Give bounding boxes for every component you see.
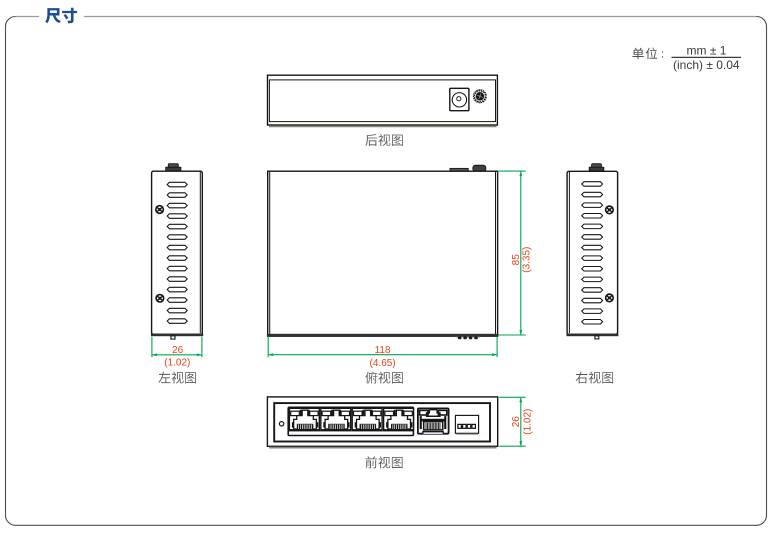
svg-text:(inch) ± 0.04: (inch) ± 0.04 [673,58,740,72]
svg-text:(3.35): (3.35) [521,247,532,273]
svg-text:118: 118 [375,345,391,356]
svg-text::: : [661,49,664,61]
svg-text:(1.02): (1.02) [522,409,533,435]
svg-text:mm ± 1: mm ± 1 [687,43,727,57]
svg-text:26: 26 [511,416,522,428]
svg-text:26: 26 [172,345,184,356]
svg-text:85: 85 [511,254,522,266]
svg-text:(4.65): (4.65) [370,358,396,369]
svg-text:(1.02): (1.02) [164,358,190,369]
